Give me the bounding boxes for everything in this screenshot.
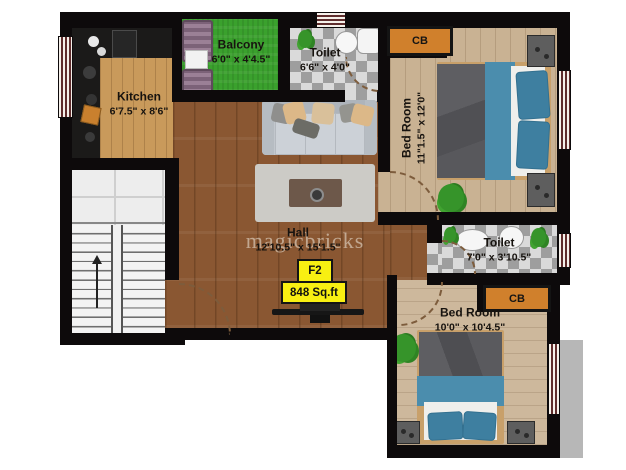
outside-paving <box>560 340 583 458</box>
hall-dims: 12'10.5" x 15'1.5" <box>255 241 340 255</box>
bed-right-pillow <box>516 120 550 170</box>
stair-rail <box>111 225 123 333</box>
toilet-right-plant-right-icon <box>531 228 546 247</box>
flat-number-badge: F2 <box>297 259 333 283</box>
kitchen-board-icon <box>80 104 101 125</box>
stairs-arrow-head-icon <box>92 255 102 264</box>
window-left-kitchen <box>58 36 73 118</box>
wall-top-balcony <box>172 12 278 19</box>
kitchen-name: Kitchen <box>110 89 169 105</box>
flat-number: F2 <box>308 265 321 277</box>
bedroom-right-name: Bed Room <box>399 92 415 164</box>
balcony-table <box>185 50 208 69</box>
wall-toilet-right-bottom <box>427 273 570 285</box>
kitchen-sink2-icon <box>97 47 106 56</box>
wall-top-kitchen <box>60 12 172 28</box>
toilet-right-door-threshold <box>427 243 442 273</box>
entrance-doorway-floor <box>165 280 179 328</box>
stair-landing <box>68 168 165 225</box>
cupboard-top: CB <box>387 26 453 56</box>
toilet-right-label: Toilet 7'0" x 3'10.5" <box>467 235 532 264</box>
wall-toilet-right-left <box>427 225 442 243</box>
toilet-right-dims: 7'0" x 3'10.5" <box>467 251 532 265</box>
toilet-right-name: Toilet <box>467 235 532 251</box>
stair-landing-edge <box>68 222 165 224</box>
stove-icon <box>112 30 137 58</box>
bed-bottom-duvet <box>419 332 502 380</box>
wall-balcony-hall <box>172 90 345 102</box>
wall-bedroom-bottom-left <box>387 275 397 458</box>
tv-stand <box>310 315 330 323</box>
kitchen-sink-icon <box>88 36 99 47</box>
toilet-top-dims: 6'6" x 4'0" <box>300 61 350 75</box>
cupboard-top-label: CB <box>412 35 428 47</box>
bedroom-bottom-name: Bed Room <box>435 305 505 321</box>
area-badge: 848 Sq.ft <box>281 281 347 304</box>
nightstand <box>394 421 420 444</box>
nightstand <box>527 173 555 207</box>
sofa-pillow <box>311 102 335 125</box>
hall-name: Hall <box>255 225 340 241</box>
bed-right-duvet <box>437 64 489 178</box>
bed-right-pillow <box>515 70 550 120</box>
balcony-dims: 6'0" x 4'4.5" <box>212 53 271 67</box>
kitchen-pan-icon <box>86 94 97 105</box>
window-bedroom-bottom <box>548 343 560 415</box>
window-top-toilet <box>316 12 346 28</box>
kitchen-pot-icon <box>83 66 96 79</box>
floor-plan: CB CB magicbricks Kitchen 6'7.5" x 8'6" … <box>0 0 626 470</box>
bed-bottom-pillow <box>427 411 463 441</box>
bedroom-right-doorway-floor <box>378 172 390 212</box>
corridor-floor <box>390 225 427 280</box>
bedroom-right-label: Bed Room 11"1.5" x 12'0" <box>399 92 428 164</box>
bedroom-bottom-dims: 10'0" x 10'4.5" <box>435 321 505 335</box>
wall-balcony-toilet <box>278 12 290 98</box>
wall-balcony-left <box>172 12 182 98</box>
wall-bedroom-bottom-bottom <box>387 445 560 458</box>
bed-bottom-pillow <box>462 411 497 441</box>
balcony-name: Balcony <box>212 37 271 53</box>
nightstand <box>527 35 555 67</box>
hall-label: Hall 12'10.5" x 15'1.5" <box>255 225 340 254</box>
wall-stair-hall <box>165 168 179 280</box>
nightstand <box>507 421 535 444</box>
bedroom-right-dims: 11"1.5" x 12'0" <box>415 92 429 164</box>
area-value: 848 Sq.ft <box>290 287 338 299</box>
stairs-up-arrow-icon <box>96 262 98 308</box>
toilet-top-label: Toilet 6'6" x 4'0" <box>300 45 350 74</box>
toilet-top-name: Toilet <box>300 45 350 61</box>
window-right-bedroom <box>558 70 571 150</box>
bedroom-right-plant-icon <box>438 184 464 212</box>
kitchen-bowl-icon <box>85 132 95 142</box>
balcony-label: Balcony 6'0" x 4'4.5" <box>212 37 271 66</box>
bedroom-bottom-label: Bed Room 10'0" x 10'4.5" <box>435 305 505 334</box>
kitchen-label: Kitchen 6'7.5" x 8'6" <box>110 89 169 118</box>
window-right-toilet <box>558 233 571 268</box>
wall-kitchen-bottom <box>60 158 179 170</box>
table-decor-icon <box>310 188 324 202</box>
kitchen-dims: 6'7.5" x 8'6" <box>110 105 169 119</box>
cupboard-bottom-label: CB <box>509 293 525 305</box>
